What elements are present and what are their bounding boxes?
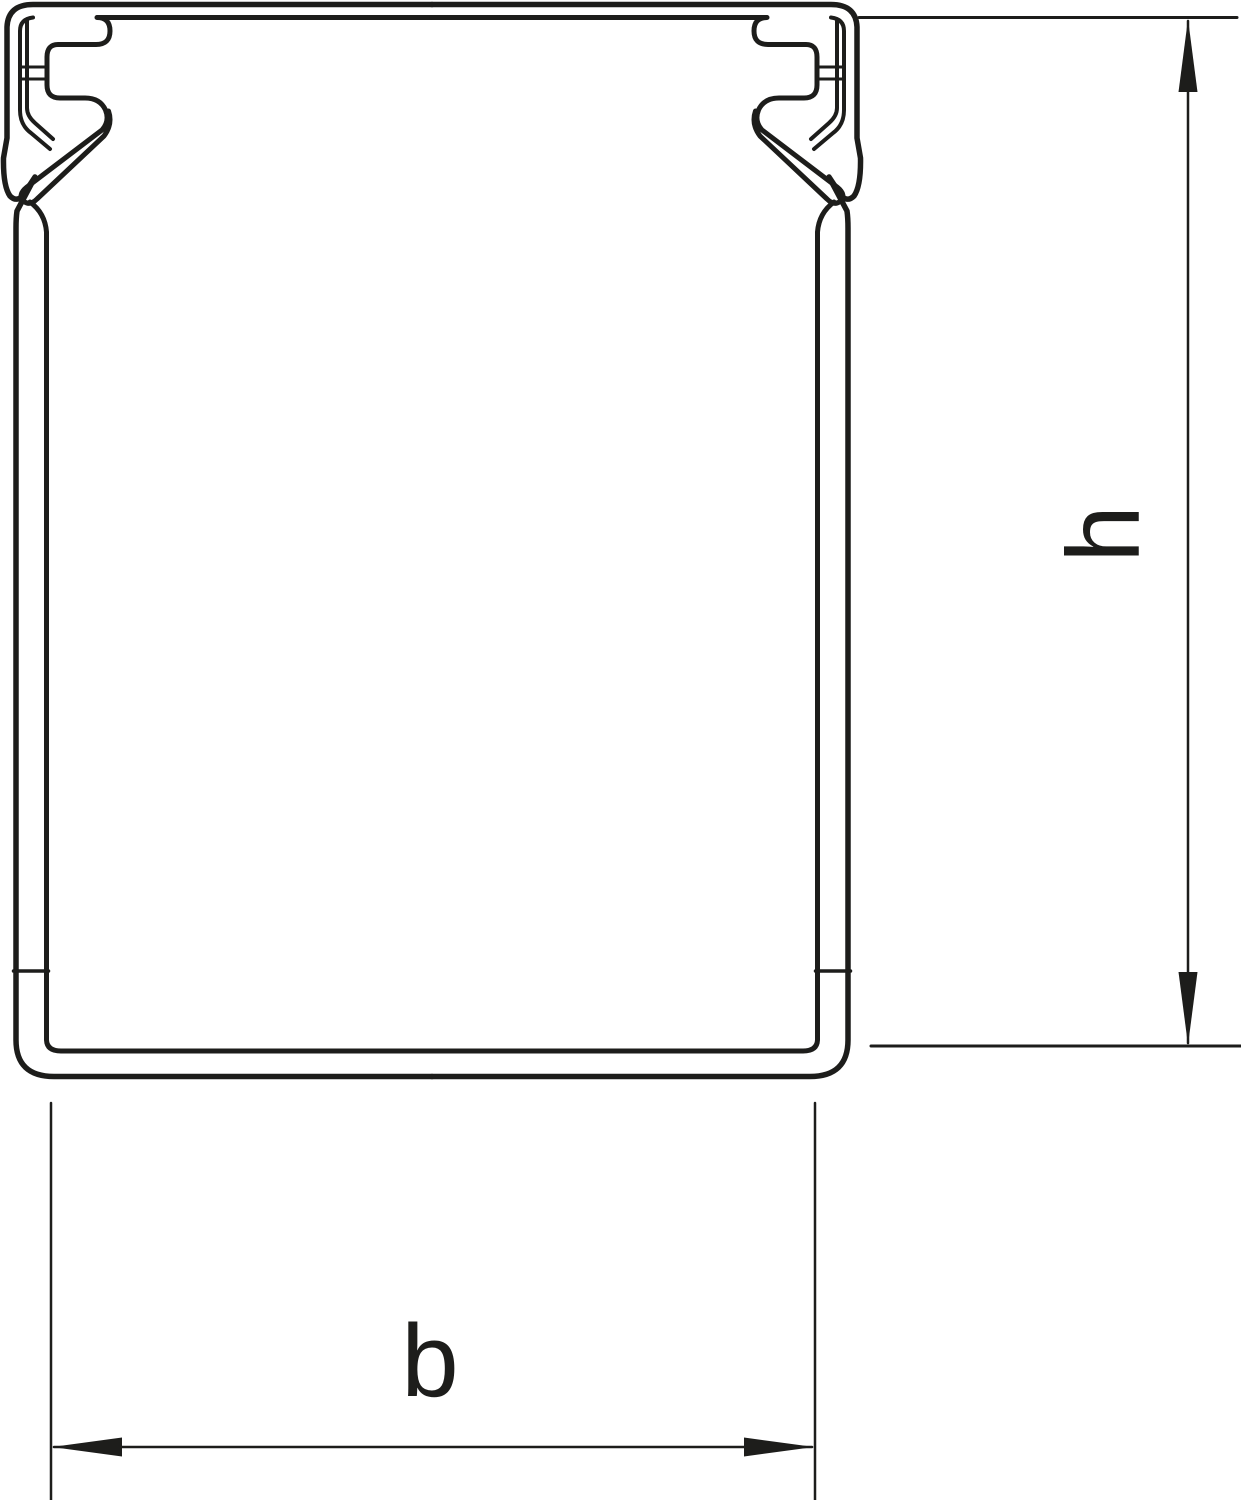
height-dimension-label: h xyxy=(1046,505,1161,562)
profile-left-half xyxy=(3,5,432,1077)
height-dimension: h xyxy=(859,18,1241,1047)
width-dimension: b xyxy=(51,1103,815,1500)
arrowhead-left xyxy=(52,1438,122,1457)
cable-duct-cross-section-drawing: h b xyxy=(0,0,1241,1500)
profile-outer-contour xyxy=(3,5,432,1077)
drawing-root: h b xyxy=(3,5,1241,1500)
arrowhead-down xyxy=(1179,972,1198,1045)
profile-inner-wall xyxy=(30,202,432,1051)
arrowhead-right xyxy=(744,1438,814,1457)
duct-profile xyxy=(3,5,860,1077)
technical-drawing-canvas: h b xyxy=(0,0,1241,1500)
profile-right-half-mirror xyxy=(432,5,861,1077)
arrowhead-up xyxy=(1179,19,1198,92)
width-dimension-label: b xyxy=(401,1303,458,1418)
profile-clip-hook xyxy=(21,18,432,204)
